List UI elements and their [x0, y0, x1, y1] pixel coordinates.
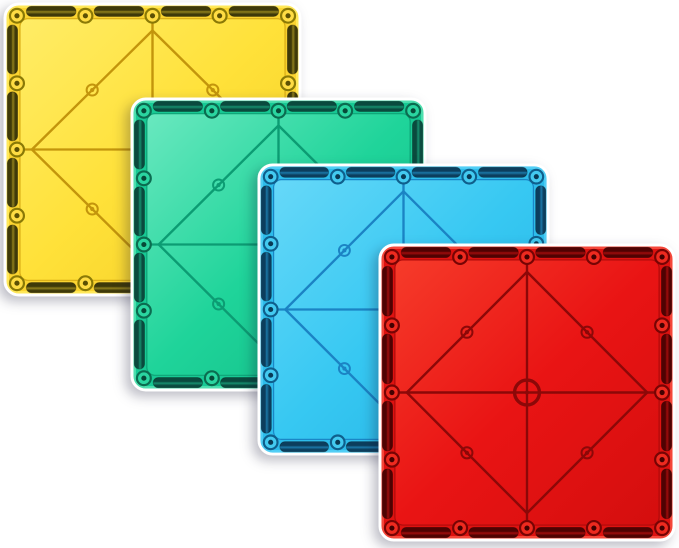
magnetic-tile-red: [378, 243, 676, 542]
product-photo-canvas: [0, 0, 679, 548]
